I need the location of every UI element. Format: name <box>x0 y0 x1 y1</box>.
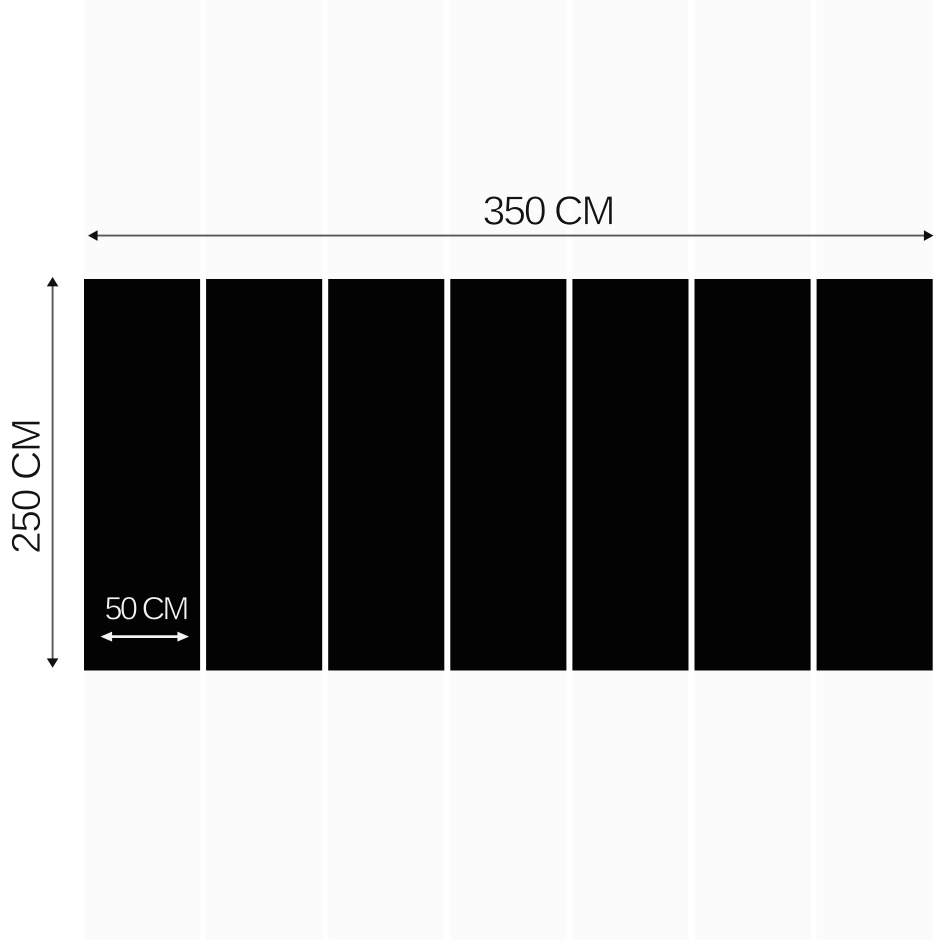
svg-text:350 CM: 350 CM <box>483 188 616 234</box>
svg-text:50 CM: 50 CM <box>105 591 190 627</box>
svg-text:250 CM: 250 CM <box>3 418 49 554</box>
